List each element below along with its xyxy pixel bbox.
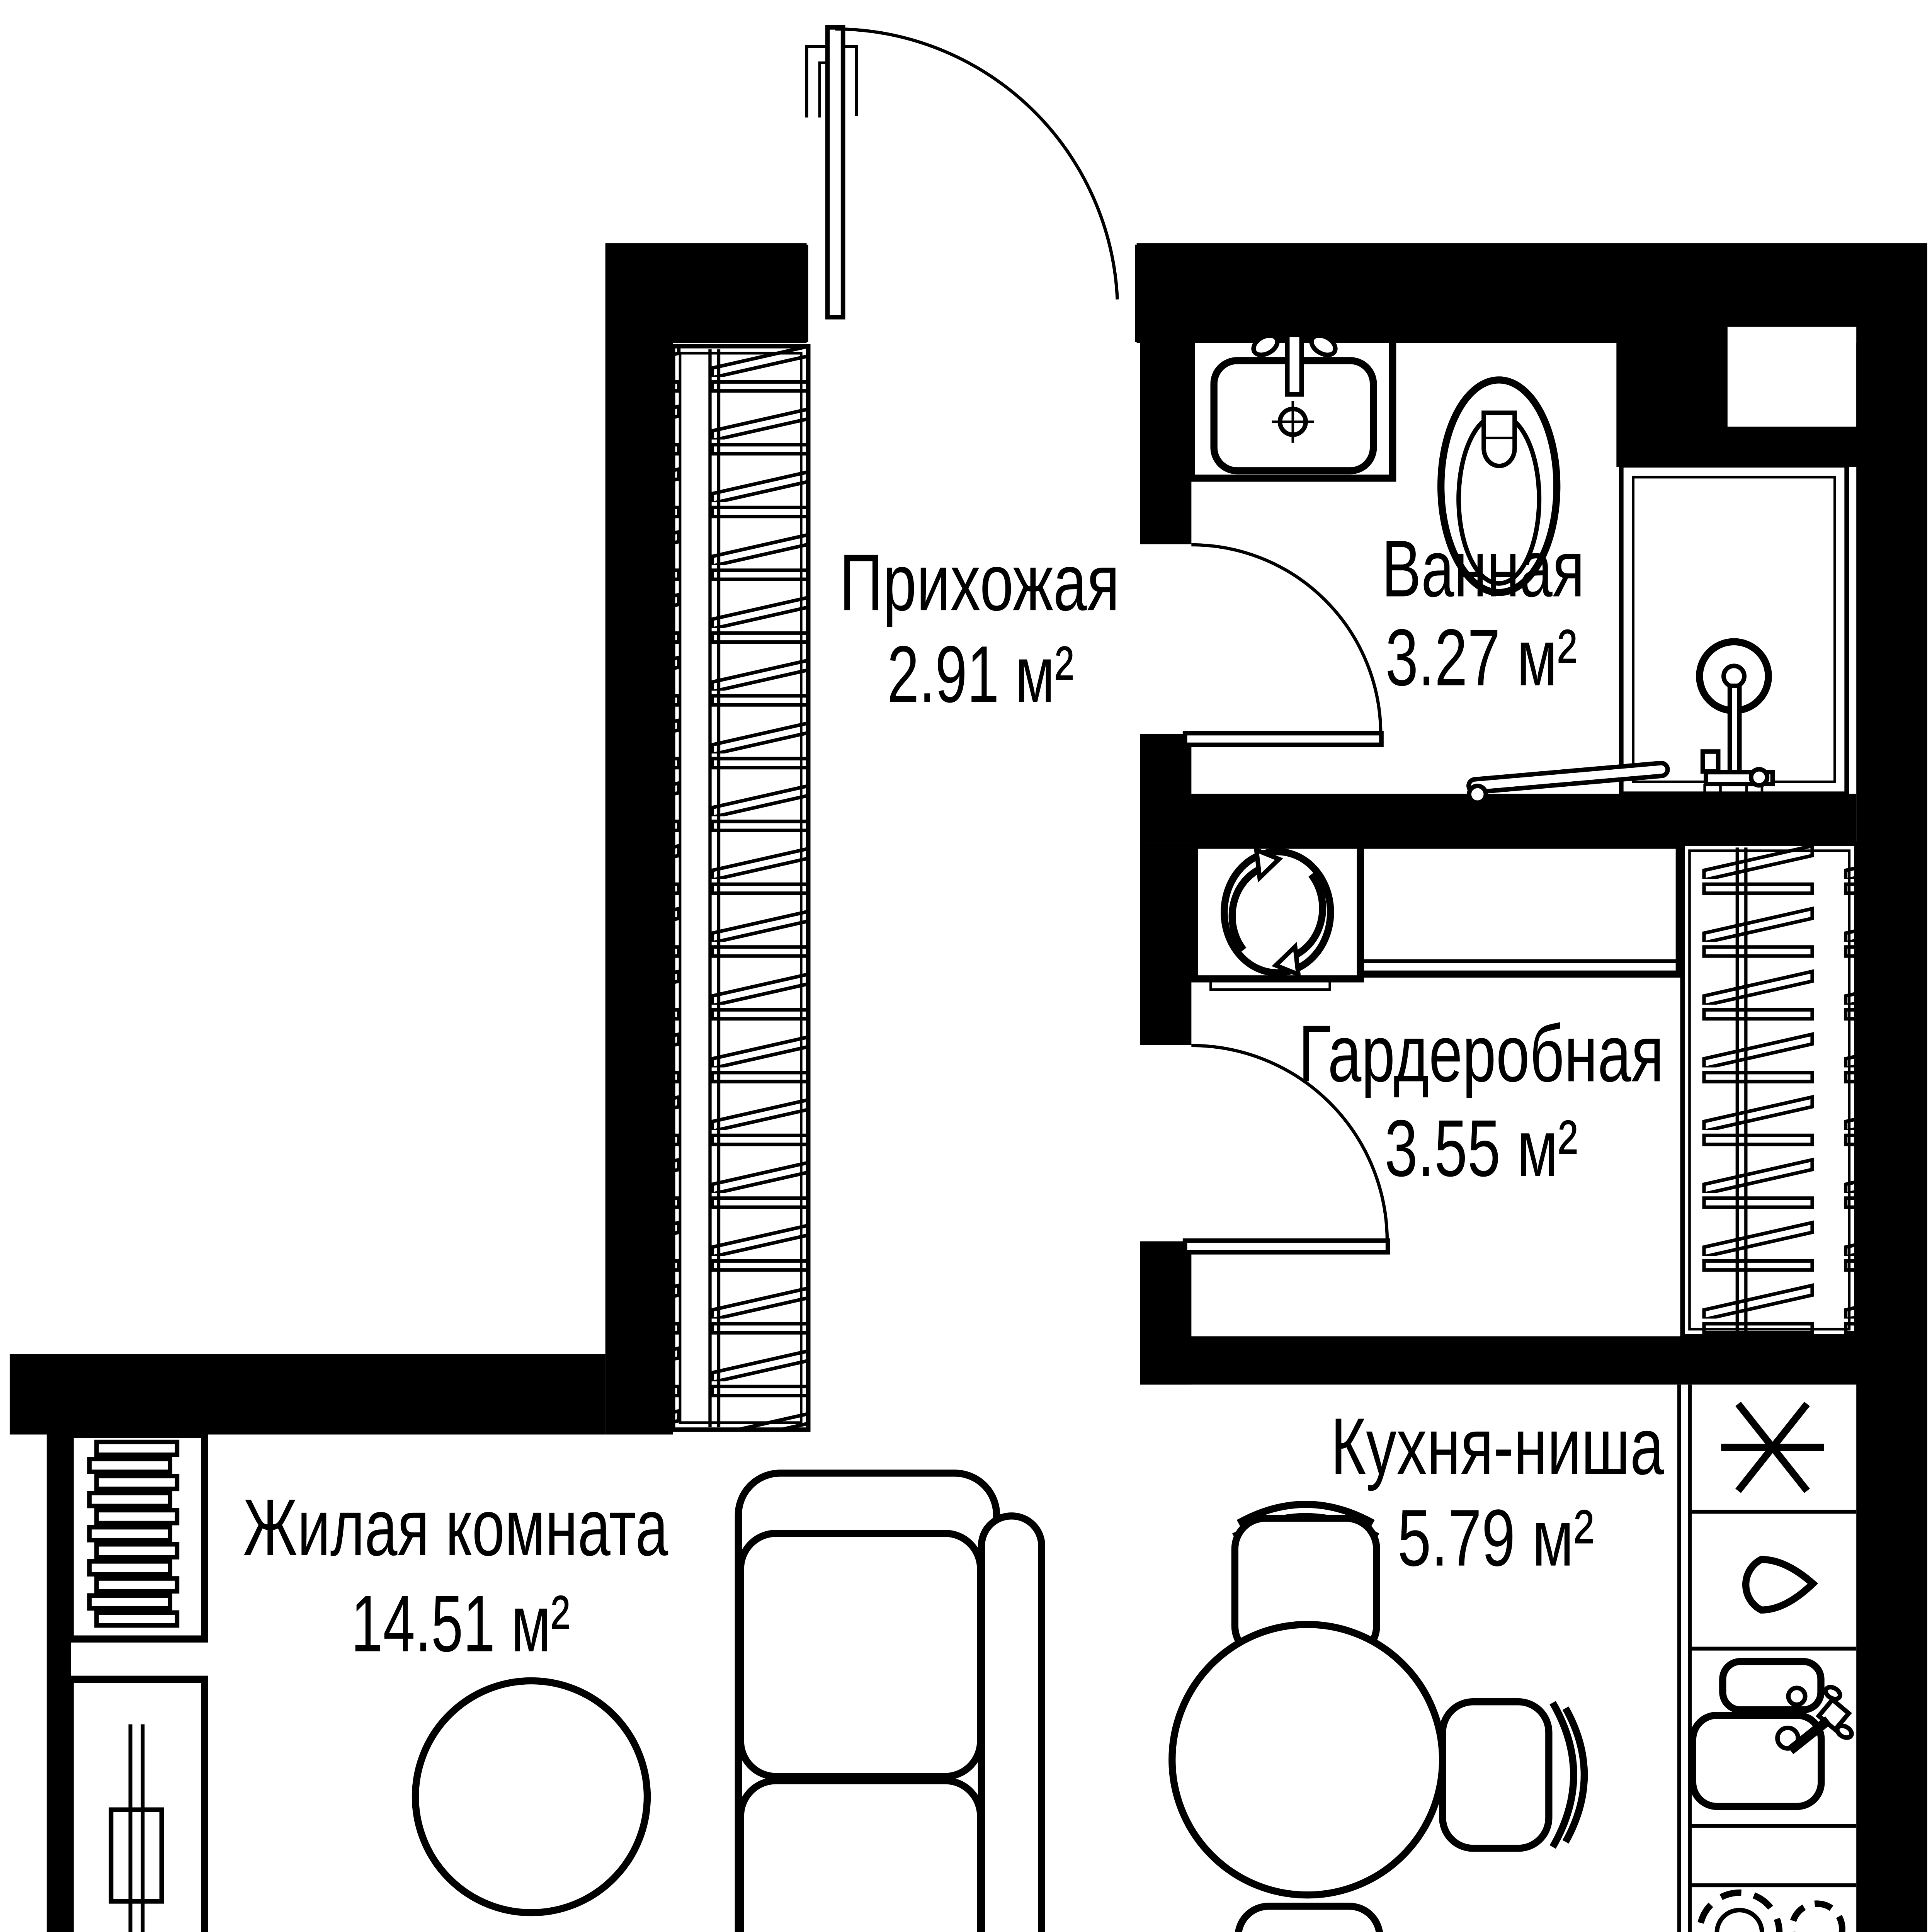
chair-icon [1236,1906,1379,1932]
room-label-bathroom-area: 3.27 м² [1385,612,1577,702]
room-label-bathroom-name: Ванная [1382,524,1585,614]
closet-hatch-icon [1682,844,1856,1336]
room-label-living-area: 14.51 м² [351,1578,570,1668]
shaft-window [1726,325,1858,429]
room-label-wardrobe-name: Гардеробная [1298,1009,1664,1099]
room-label-hallway-area: 2.91 м² [887,629,1074,719]
floor-plan: Прихожая 2.91 м² Ванная 3.27 м² Гардероб… [0,0,1932,1932]
dining-table-icon [1172,1624,1442,1895]
room-label-hallway-name: Прихожая [840,537,1120,628]
hallway-closet-hatch-icon [673,346,808,1430]
sofa-icon [738,1473,1042,1932]
shower-icon [1621,465,1847,794]
room-label-kitchen-name: Кухня-ниша [1331,1401,1664,1492]
room-label-living-name: Жилая комната [243,1483,668,1573]
room-label-wardrobe-area: 3.55 м² [1384,1103,1578,1193]
room-label-kitchen-area: 5.79 м² [1398,1493,1594,1583]
